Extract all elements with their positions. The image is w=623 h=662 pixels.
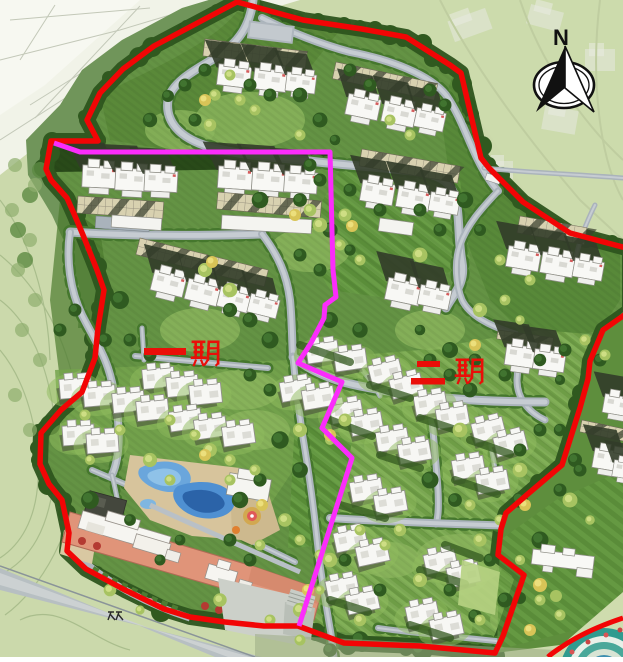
svg-text:N: N — [553, 25, 569, 50]
